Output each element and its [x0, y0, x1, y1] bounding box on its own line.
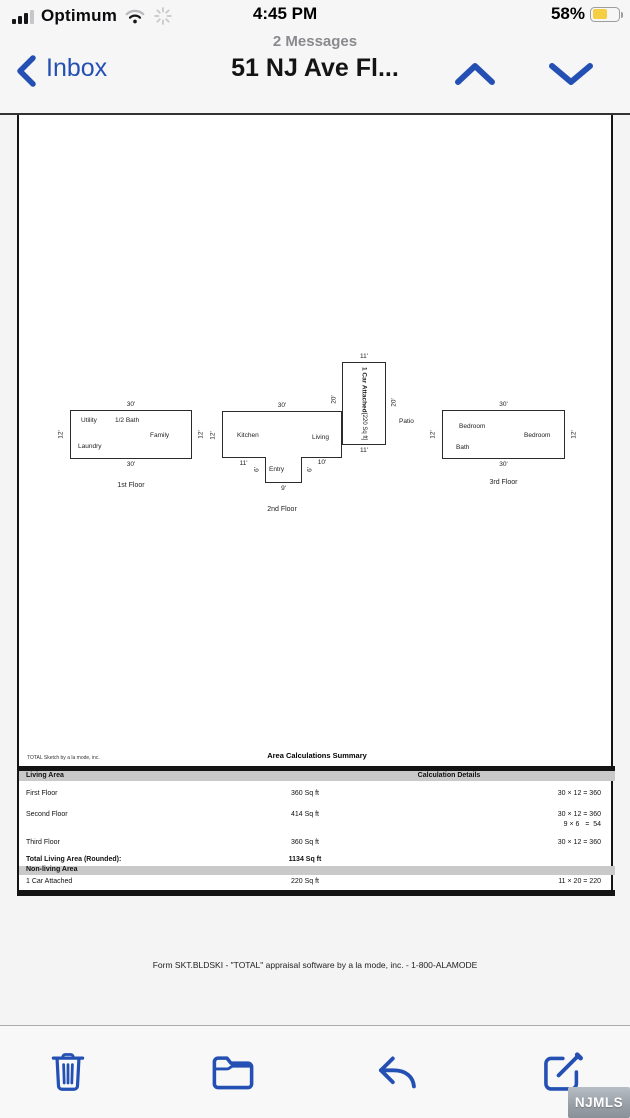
room-label-bedroom1: Bedroom — [459, 423, 485, 430]
dim-label: 12' — [571, 427, 578, 443]
room-label-family: Family — [150, 432, 169, 439]
table-row-label: Third Floor — [26, 839, 60, 846]
room-label-bedroom2: Bedroom — [524, 432, 550, 439]
table-bottom-edge — [19, 890, 615, 896]
next-message-chevron-down-icon[interactable] — [546, 60, 596, 88]
floor3-label: 3rd Floor — [442, 479, 565, 486]
dim-label: 12' — [198, 427, 205, 443]
table-row-calc: 11 × 20 = 220 — [479, 878, 607, 885]
dim-label: 30' — [70, 461, 192, 468]
trash-icon — [49, 1049, 87, 1095]
living-area-header: Living Area — [26, 772, 64, 779]
total-living-area-value: 1134 Sq ft — [259, 856, 351, 863]
back-to-inbox-button[interactable]: Inbox — [46, 54, 107, 83]
back-chevron-icon[interactable] — [14, 54, 38, 88]
table-row-calc: 30 × 12 = 360 — [479, 790, 607, 797]
mail-toolbar — [0, 1025, 630, 1118]
battery-percent-label: 58% — [551, 4, 585, 24]
dim-label: 20' — [331, 392, 338, 408]
message-title: 51 NJ Ave Fl... — [180, 54, 450, 83]
table-row-calc: 30 × 12 = 360 — [479, 811, 607, 818]
email-body-scroll-area[interactable]: 30' 30' 12' 12' Utility 1/2 Bath Family … — [0, 113, 630, 1025]
table-row-area: 360 Sq ft — [259, 790, 351, 797]
room-label-bath: Bath — [456, 444, 469, 451]
njmls-watermark: NJMLS — [568, 1087, 630, 1118]
table-row-calc: 9 × 6 = 54 — [479, 821, 607, 828]
previous-message-chevron-up-icon[interactable] — [452, 60, 498, 88]
table-row-area: 360 Sq ft — [259, 839, 351, 846]
calc-details-header: Calculation Details — [369, 772, 529, 779]
reply-button[interactable] — [374, 1046, 420, 1098]
room-label-living: Living — [312, 434, 329, 441]
room-label-utility: Utility — [81, 417, 97, 424]
trash-button[interactable] — [45, 1046, 91, 1098]
dim-label: 30' — [70, 401, 192, 408]
floor2-label: 2nd Floor — [222, 506, 342, 513]
table-row-label: First Floor — [26, 790, 58, 797]
floor1-label: 1st Floor — [70, 482, 192, 489]
room-label-kitchen: Kitchen — [237, 432, 259, 439]
dim-label: 30' — [442, 461, 565, 468]
dim-label: 12' — [430, 427, 437, 443]
wifi-icon — [124, 7, 146, 25]
table-row-area: 414 Sq ft — [259, 811, 351, 818]
dim-label: 6' — [307, 462, 314, 478]
clock-time: 4:45 PM — [225, 4, 345, 24]
room-label-half-bath: 1/2 Bath — [115, 417, 139, 424]
dim-label: 20' — [391, 395, 398, 411]
cellular-signal-icon — [12, 9, 34, 24]
table-row-label: 1 Car Attached — [26, 878, 72, 885]
carrier-label: Optimum — [41, 6, 117, 26]
floorplan-sketch-page: 30' 30' 12' 12' Utility 1/2 Bath Family … — [17, 115, 613, 896]
patio-label: Patio — [399, 418, 414, 425]
activity-spinner-icon — [153, 6, 173, 26]
table-row-area: 220 Sq ft — [259, 878, 351, 885]
mail-nav-bar: 2 Messages Inbox 51 NJ Ave Fl... — [0, 30, 630, 113]
total-living-area-label: Total Living Area (Rounded): — [26, 856, 121, 863]
dim-label: 12' — [58, 427, 65, 443]
move-to-folder-button[interactable] — [210, 1046, 256, 1098]
garage-label: 1 Car Attached [220 Sq ft] — [342, 362, 386, 445]
status-bar: Optimum 4:45 PM 58% — [0, 0, 630, 30]
nonliving-area-header: Non-living Area — [26, 866, 77, 873]
dim-label: 6' — [254, 462, 261, 478]
dim-label: 9' — [265, 485, 302, 492]
form-footer-label: Form SKT.BLDSKI - "TOTAL" appraisal soft… — [0, 960, 630, 970]
dim-label: 30' — [442, 401, 565, 408]
room-label-entry: Entry — [269, 466, 284, 473]
dim-label: 12' — [210, 428, 217, 444]
battery-icon — [590, 7, 620, 22]
message-count-label: 2 Messages — [0, 33, 630, 50]
nonliving-header-row — [19, 866, 615, 875]
table-title: Area Calculations Summary — [19, 751, 615, 760]
table-row-label: Second Floor — [26, 811, 68, 818]
dim-label: 30' — [222, 402, 342, 409]
dim-label: 11' — [342, 447, 386, 454]
room-label-laundry: Laundry — [78, 443, 102, 450]
folder-icon — [211, 1053, 255, 1091]
mail-app-screen: Optimum 4:45 PM 58% 2 — [0, 0, 630, 1118]
dim-label: 11' — [342, 353, 386, 360]
reply-icon — [375, 1052, 419, 1092]
table-row-calc: 30 × 12 = 360 — [479, 839, 607, 846]
